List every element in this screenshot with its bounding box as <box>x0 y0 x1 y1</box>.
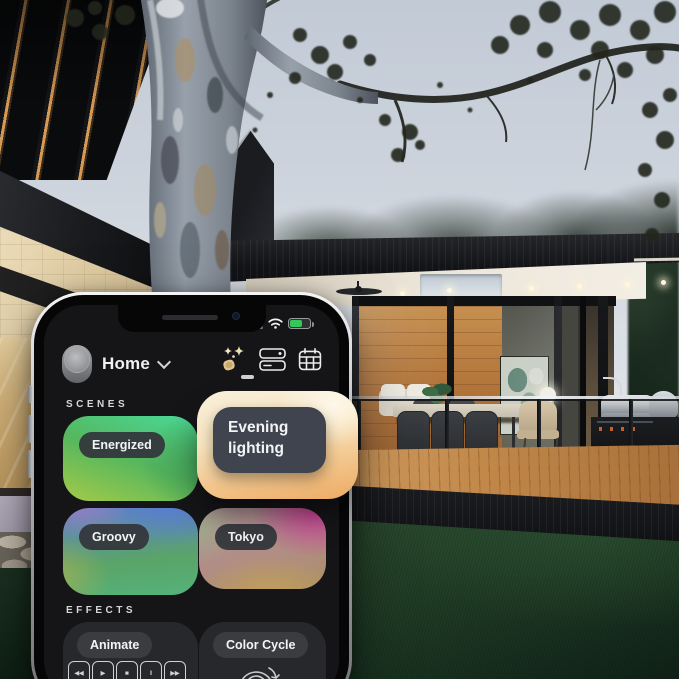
phone-notch <box>118 305 266 332</box>
pause-icon[interactable]: ‖ <box>140 661 162 679</box>
scene-name-pill: Tokyo <box>215 524 277 550</box>
avatar-face <box>64 347 90 373</box>
schedule-calendar-icon <box>298 348 322 371</box>
screenshot-stage: Home <box>0 0 679 679</box>
fast-forward-icon[interactable]: ▶▶ <box>164 661 186 679</box>
battery-icon <box>288 318 311 329</box>
scene-tile-tokyo[interactable]: Tokyo <box>199 508 326 589</box>
scenes-section-label: SCENES <box>66 399 128 410</box>
effect-name-pill: Color Cycle <box>213 632 308 658</box>
scene-name-pill: Energized <box>79 432 165 458</box>
rewind-icon[interactable]: ◀◀ <box>68 661 90 679</box>
volume-up-button[interactable] <box>28 415 32 443</box>
schedule-calendar-button[interactable] <box>298 348 322 371</box>
app-header: Home <box>62 341 325 387</box>
volume-down-button[interactable] <box>28 450 32 478</box>
color-wheel-swirl-icon <box>225 662 289 679</box>
tree-branch-fork <box>244 25 378 104</box>
transport-controls: ◀◀ ▶ ■ ‖ ▶▶ <box>68 661 186 679</box>
scene-name-line2: lighting <box>228 438 326 459</box>
scene-name-pill: Groovy <box>79 524 149 550</box>
magic-scenes-icon <box>220 346 247 373</box>
scene-name-card: Evening lighting <box>213 407 326 473</box>
play-icon[interactable]: ▶ <box>92 661 114 679</box>
chevron-down-icon[interactable] <box>157 354 171 368</box>
magic-scenes-button[interactable] <box>220 346 247 373</box>
earpiece-speaker <box>162 315 218 320</box>
active-tab-indicator <box>241 375 254 379</box>
effect-name-pill: Animate <box>77 632 152 658</box>
effect-tile-animate[interactable]: Animate ◀◀ ▶ ■ ‖ ▶▶ <box>63 622 198 679</box>
header-actions <box>220 346 322 373</box>
effects-section-label: EFFECTS <box>66 605 136 616</box>
wifi-icon <box>268 318 283 329</box>
home-selector-title[interactable]: Home <box>102 354 150 374</box>
mute-switch[interactable] <box>28 385 32 403</box>
scene-name-line1: Evening <box>228 417 326 438</box>
front-camera <box>232 312 240 320</box>
scene-tile-evening-lighting[interactable]: Evening lighting <box>197 391 358 499</box>
effect-tile-color-cycle[interactable]: Color Cycle <box>199 622 326 679</box>
controls-cards-icon <box>259 348 286 371</box>
scene-tile-energized[interactable]: Energized <box>63 416 198 501</box>
stop-icon[interactable]: ■ <box>116 661 138 679</box>
scene-tile-groovy[interactable]: Groovy <box>63 508 198 595</box>
home-avatar-knob[interactable] <box>62 345 92 383</box>
controls-cards-button[interactable] <box>259 348 286 371</box>
